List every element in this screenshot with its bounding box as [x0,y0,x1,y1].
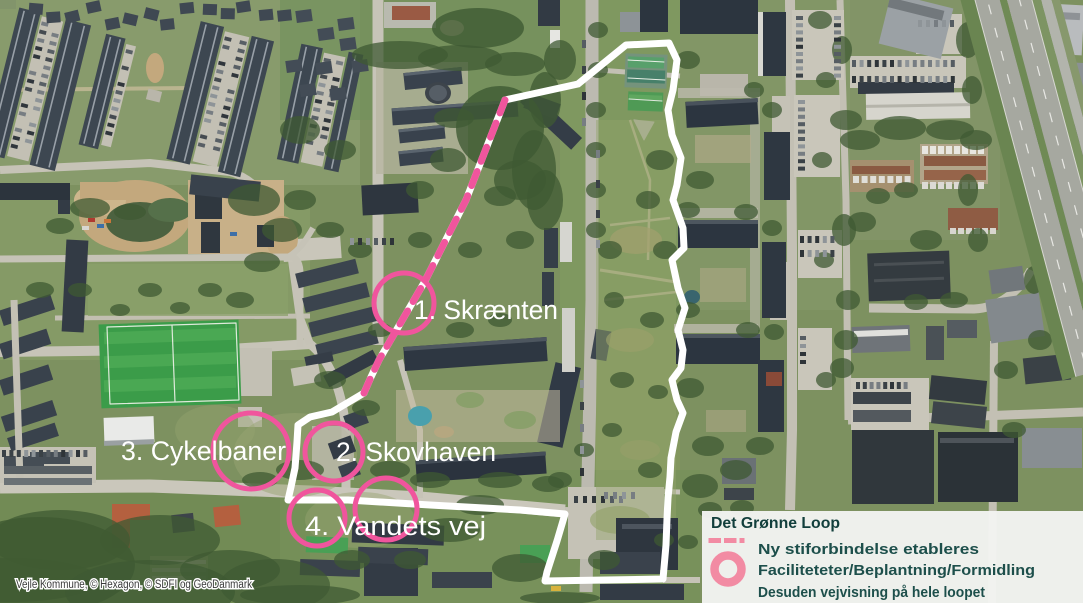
svg-text:Ny stiforbindelse etableres: Ny stiforbindelse etableres [758,541,979,558]
svg-text:3. Cykelbaner: 3. Cykelbaner [121,436,286,466]
svg-text:1. Skrænten: 1. Skrænten [414,295,558,325]
svg-text:Faciliteteter/Beplantning/Form: Faciliteteter/Beplantning/Formidling [758,562,1035,579]
svg-text:Desuden vejvisning på hele loo: Desuden vejvisning på hele loopet [758,584,985,601]
svg-text:2. Skovhaven: 2. Skovhaven [336,437,496,467]
svg-text:Det Grønne Loop: Det Grønne Loop [711,515,840,532]
svg-text:Vejle Kommune, © Hexagon, © SD: Vejle Kommune, © Hexagon, © SDFI og GeoD… [16,579,252,591]
svg-text:4. Vandets vej: 4. Vandets vej [305,511,486,541]
